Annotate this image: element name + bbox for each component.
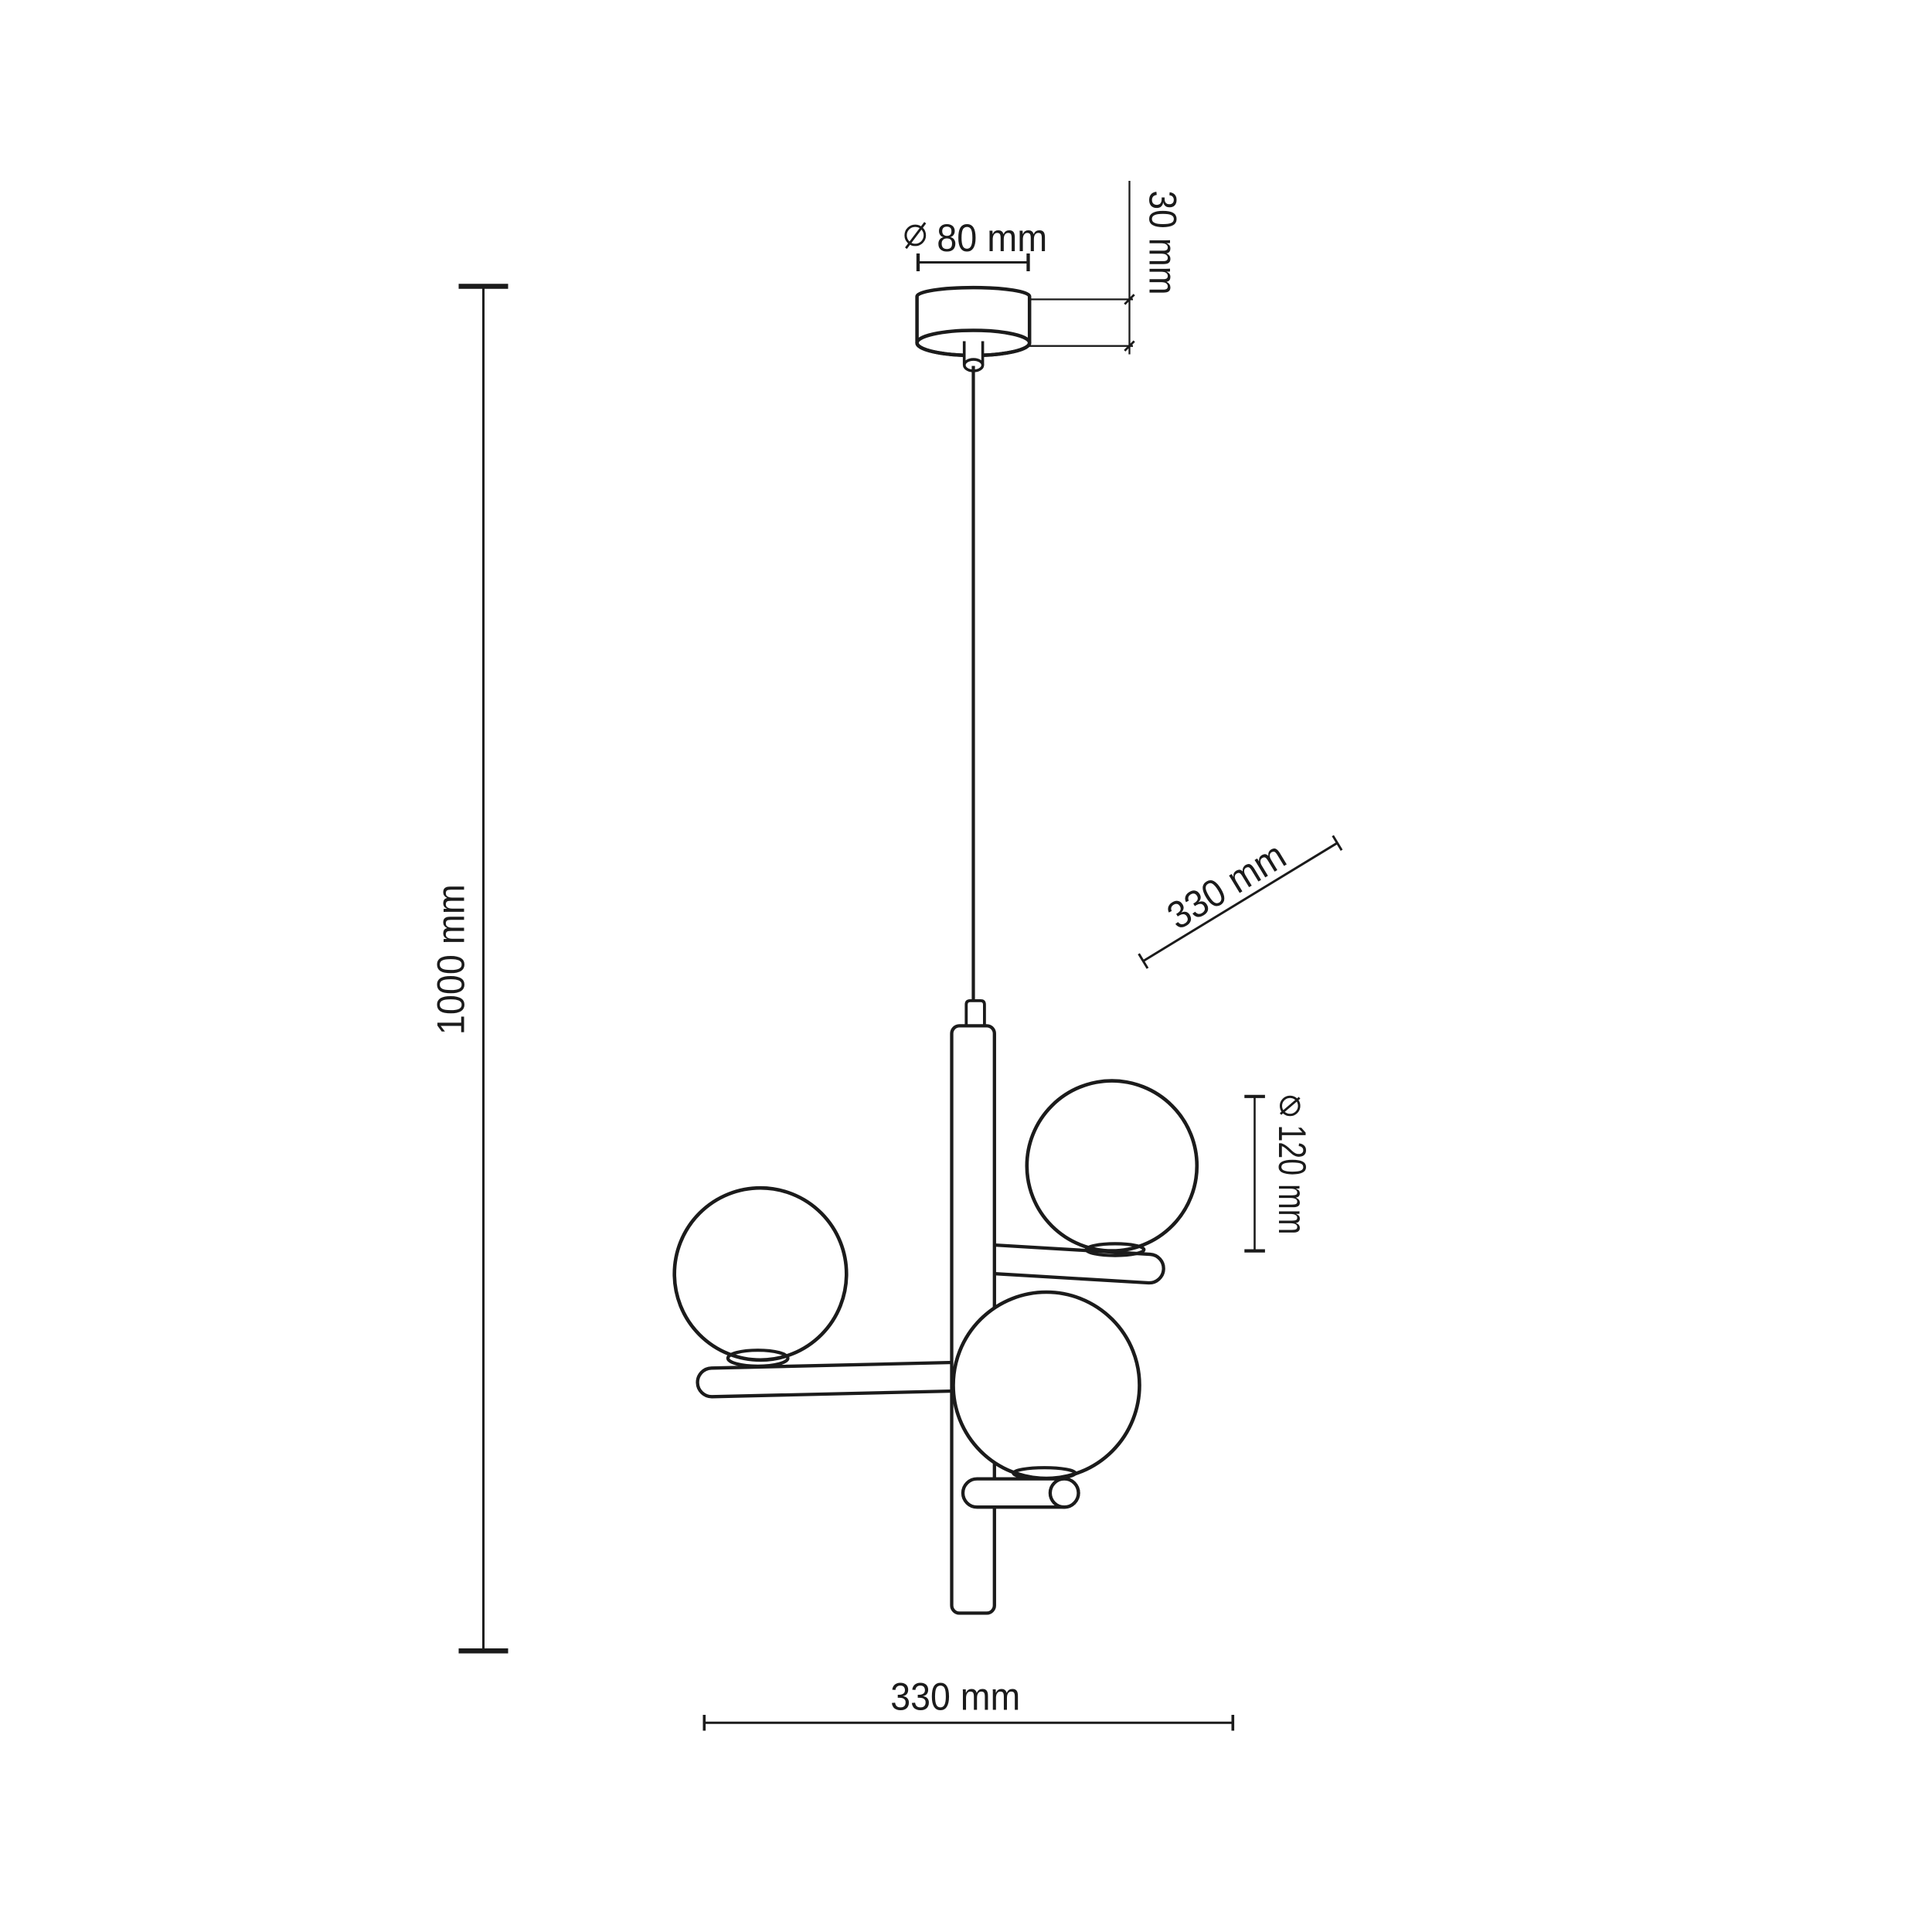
svg-text:330 mm: 330 mm xyxy=(890,1675,1020,1719)
svg-text:80 mm: 80 mm xyxy=(937,216,1047,260)
svg-text:120 mm: 120 mm xyxy=(1270,1125,1314,1235)
svg-text:1000 mm: 1000 mm xyxy=(430,884,473,1035)
svg-text:30 mm: 30 mm xyxy=(1141,191,1185,295)
